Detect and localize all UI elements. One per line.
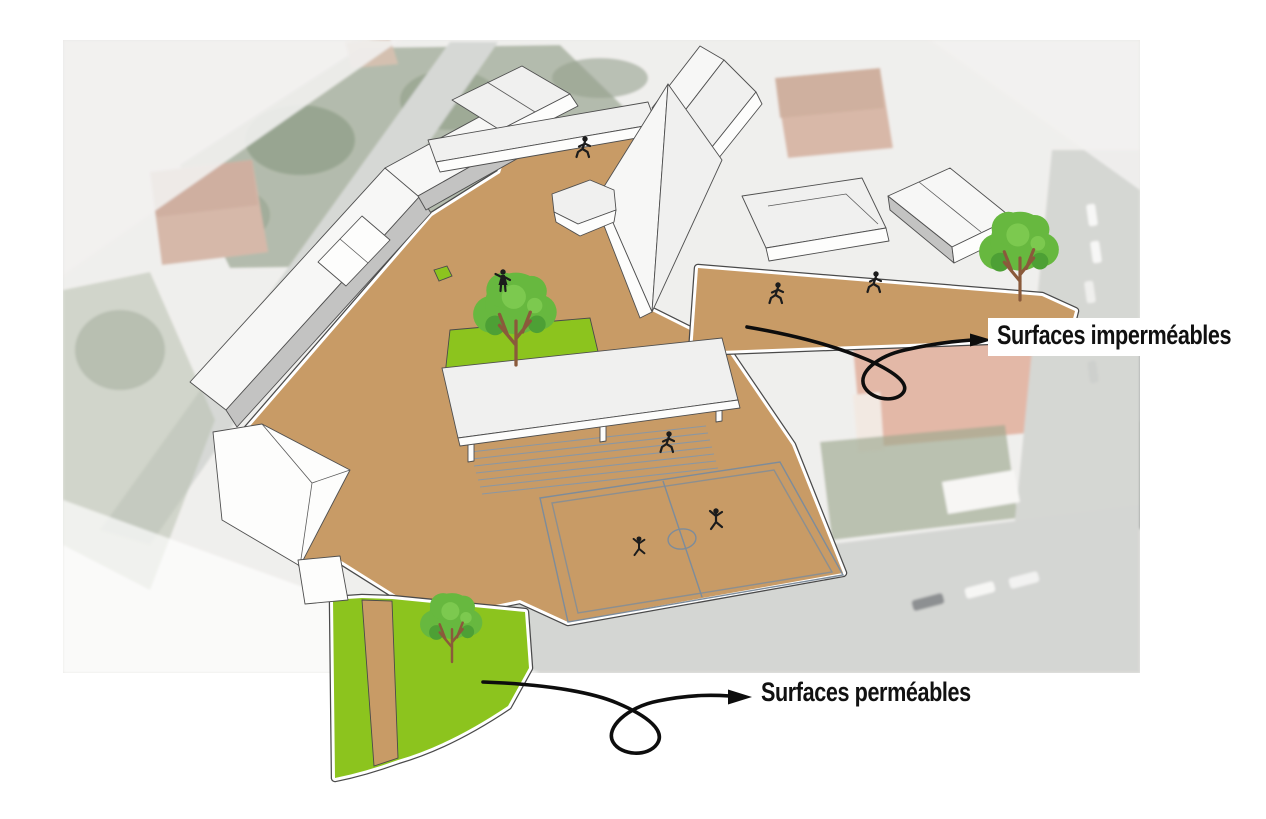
arrow-permeable — [483, 682, 752, 753]
site-plan-scene — [0, 0, 1266, 819]
building-house-sw-base — [298, 556, 348, 604]
label-impermeable-surfaces: Surfaces imperméables — [988, 318, 1266, 356]
label-impermeable-text: Surfaces imperméables — [997, 321, 1231, 351]
illustration-page: Surfaces imperméables Surfaces perméable… — [0, 0, 1266, 819]
label-permeable-surfaces: Surfaces perméables — [752, 675, 1032, 713]
label-permeable-text: Surfaces perméables — [761, 678, 971, 708]
